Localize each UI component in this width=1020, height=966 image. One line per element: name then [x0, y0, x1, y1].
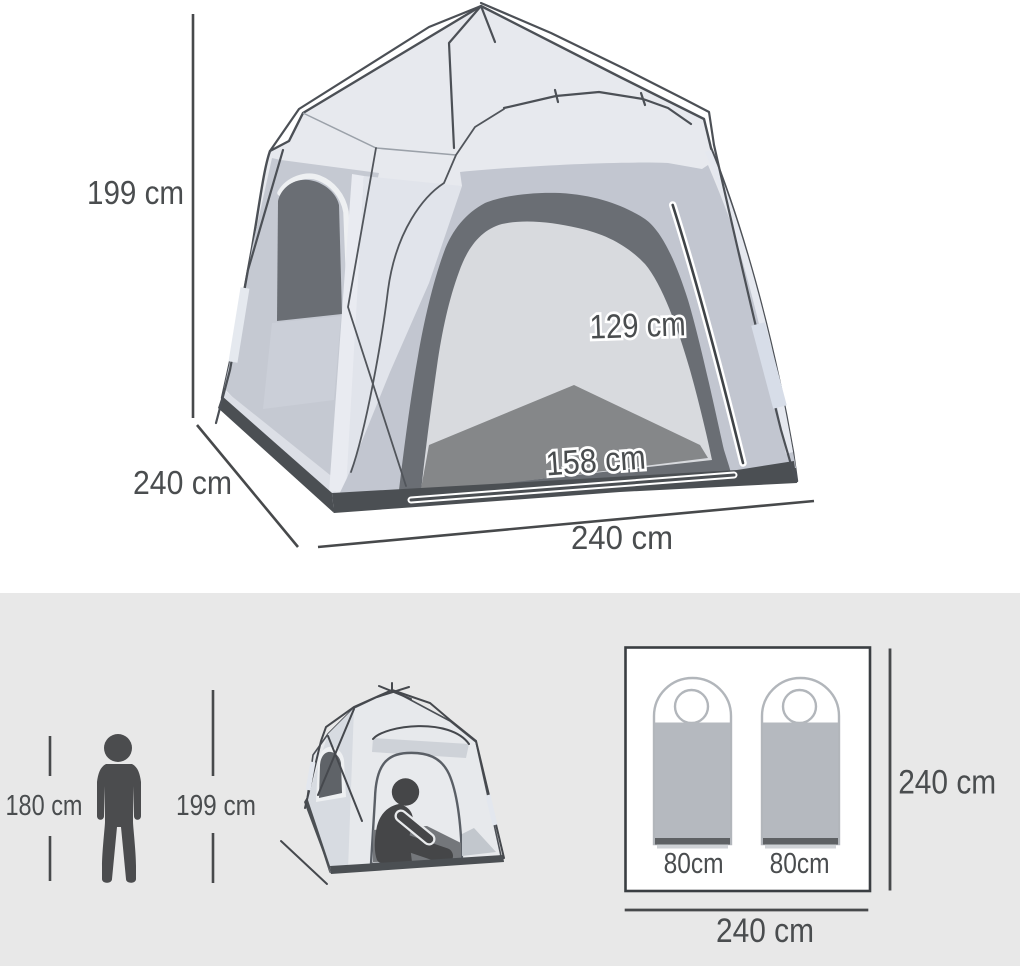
- svg-text:240 cm: 240 cm: [898, 764, 996, 802]
- svg-text:199 cm: 199 cm: [87, 174, 184, 211]
- svg-text:180 cm: 180 cm: [6, 790, 83, 822]
- svg-text:240 cm: 240 cm: [133, 464, 232, 501]
- svg-text:240 cm: 240 cm: [716, 912, 814, 950]
- svg-text:129 cm: 129 cm: [589, 305, 686, 346]
- svg-text:80cm: 80cm: [664, 848, 724, 880]
- svg-text:199 cm: 199 cm: [176, 790, 256, 822]
- svg-text:80cm: 80cm: [770, 848, 830, 880]
- svg-text:158 cm: 158 cm: [545, 439, 647, 484]
- svg-text:240 cm: 240 cm: [571, 519, 673, 556]
